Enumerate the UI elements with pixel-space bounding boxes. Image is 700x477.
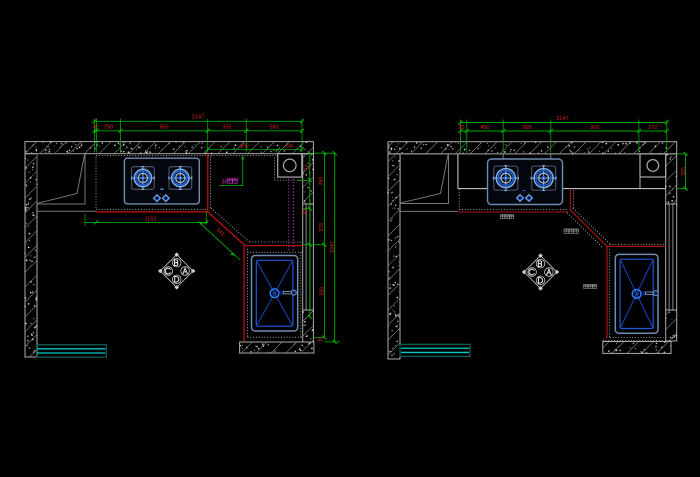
svg-text:250: 250 [104,125,113,131]
svg-text:246: 246 [285,144,294,150]
svg-text:699: 699 [240,144,249,150]
svg-text:1947: 1947 [330,241,336,253]
svg-text:30: 30 [222,179,228,185]
svg-text:52: 52 [304,164,310,170]
svg-text:365: 365 [681,167,687,176]
svg-text:370: 370 [319,223,325,232]
svg-text:42: 42 [93,125,99,131]
svg-text:40: 40 [317,338,323,344]
svg-text:900: 900 [160,125,169,131]
svg-text:505: 505 [523,125,532,131]
svg-text:900: 900 [591,125,600,131]
svg-text:2147: 2147 [192,115,204,121]
svg-text:2147: 2147 [556,116,568,122]
svg-text:20: 20 [459,125,465,131]
svg-text:580: 580 [270,125,279,131]
svg-text:450: 450 [481,125,490,131]
svg-text:1162: 1162 [144,216,156,222]
svg-text:272: 272 [648,125,657,131]
svg-text:63: 63 [303,209,309,215]
svg-text:380: 380 [319,177,325,186]
svg-text:560: 560 [319,287,325,296]
svg-text:335: 335 [223,125,232,131]
